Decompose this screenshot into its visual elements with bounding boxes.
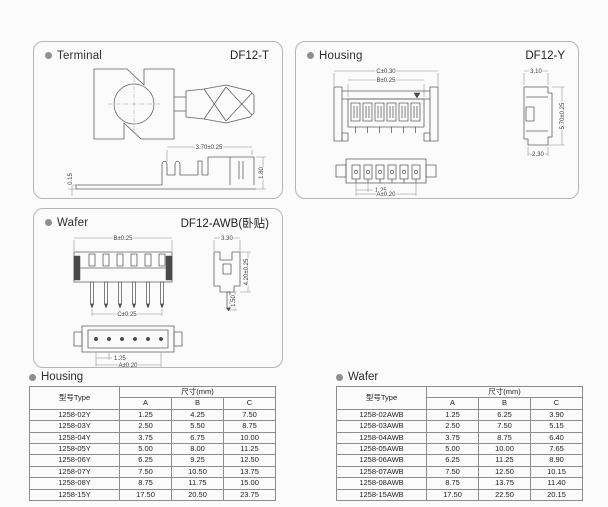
dim-label-wafer-a: A±0.20 [119, 363, 139, 368]
housing-panel-title: Housing [319, 50, 363, 62]
dim-column-header: C [531, 398, 583, 409]
dim-column-header: B [479, 398, 531, 409]
dim-c-cell: 12.50 [224, 455, 276, 466]
housing-table-title: Housing [41, 371, 83, 383]
terminal-panel-title: Terminal [57, 50, 102, 62]
dim-a-cell: 17.50 [427, 489, 479, 500]
table-row: 1258-04Y 3.75 6.75 10.00 [30, 432, 276, 443]
dim-a-cell: 6.25 [120, 455, 172, 466]
dim-a-cell: 6.25 [427, 455, 479, 466]
type-cell: 1258-05Y [30, 444, 120, 455]
table-row: 1258-07Y 7.50 10.50 13.75 [30, 466, 276, 477]
wafer-panel-title: Wafer [57, 217, 88, 229]
dim-b-cell: 4.25 [172, 409, 224, 420]
type-cell: 1258-08AWB [337, 478, 427, 489]
terminal-panel: Terminal DF12-T 3.70±0.25 [33, 41, 283, 199]
dim-label-housing-side-width: 3.10 [530, 69, 542, 75]
bullet-icon [45, 52, 52, 59]
table-row: 1258-07AWB 7.50 12.50 10.15 [337, 466, 583, 477]
dim-b-cell: 11.25 [479, 455, 531, 466]
dim-c-cell: 8.75 [224, 421, 276, 432]
type-cell: 1258-07Y [30, 466, 120, 477]
table-row: 1258-05AWB 5.00 10.00 7.65 [337, 444, 583, 455]
type-cell: 1258-07AWB [337, 466, 427, 477]
dim-b-cell: 11.75 [172, 478, 224, 489]
dim-label-terminal-height: 1.80 [259, 167, 265, 179]
dim-c-cell: 15.00 [224, 478, 276, 489]
housing-table-header: Housing [29, 371, 279, 383]
type-cell: 1258-15AWB [337, 489, 427, 500]
table-row: 1258-15AWB 17.50 22.50 20.15 [337, 489, 583, 500]
type-cell: 1258-03Y [30, 421, 120, 432]
bullet-icon [45, 219, 52, 226]
dim-label-wafer-side-height: 4.20±0.25 [244, 258, 250, 285]
dim-a-cell: 1.25 [120, 409, 172, 420]
dim-label-wafer-b: B±0.25 [114, 236, 134, 242]
table-row: 1258-05Y 5.00 8.00 11.25 [30, 444, 276, 455]
table-row: 1258-03AWB 2.50 7.50 5.15 [337, 421, 583, 432]
wafer-panel: Wafer DF12-AWB(卧贴) B±0.25 [33, 208, 283, 368]
dim-a-cell: 17.50 [120, 489, 172, 500]
table-row: 1258-15Y 17.50 20.50 23.75 [30, 489, 276, 500]
dim-c-cell: 23.75 [224, 489, 276, 500]
type-column-header: 型号Type [30, 387, 120, 410]
dim-a-cell: 5.00 [120, 444, 172, 455]
wafer-table-section: Wafer 型号Type 尺寸(mm) ABC 1258-02AWB 1.25 … [336, 371, 586, 501]
size-column-header: 尺寸(mm) [427, 387, 583, 398]
dim-b-cell: 20.50 [172, 489, 224, 500]
terminal-part-number: DF12-T [230, 50, 269, 62]
bullet-icon [336, 374, 343, 381]
dim-a-cell: 1.25 [427, 409, 479, 420]
dim-label-wafer-pitch: 1.25 [114, 356, 126, 362]
wafer-bottom-view: 1.25 A±0.20 [74, 326, 182, 368]
dim-c-cell: 7.50 [224, 409, 276, 420]
wafer-drawing: B±0.25 C±0.2 [34, 230, 282, 368]
wafer-dimension-table: 型号Type 尺寸(mm) ABC 1258-02AWB 1.25 6.25 3… [336, 386, 583, 501]
dim-label-housing-b: B±0.25 [377, 78, 397, 84]
terminal-drawing: 3.70±0.25 0.15 1.80 [34, 63, 282, 196]
table-row: 1258-03Y 2.50 5.50 8.75 [30, 421, 276, 432]
wafer-side-view: 3.30 1.50 4.20±0.25 [214, 236, 251, 311]
dim-c-cell: 20.15 [531, 489, 583, 500]
dim-c-cell: 13.75 [224, 466, 276, 477]
table-row: 1258-02AWB 1.25 6.25 3.90 [337, 409, 583, 420]
terminal-panel-header: Terminal DF12-T [34, 42, 282, 63]
table-row: 1258-08AWB 8.75 13.75 11.40 [337, 478, 583, 489]
dim-column-header: C [224, 398, 276, 409]
dim-c-cell: 11.40 [531, 478, 583, 489]
dim-a-cell: 7.50 [427, 466, 479, 477]
dim-a-cell: 3.75 [427, 432, 479, 443]
wafer-table-title: Wafer [348, 371, 378, 383]
dim-c-cell: 7.65 [531, 444, 583, 455]
dim-label-housing-side-depth: 2.30 [532, 152, 544, 158]
dim-b-cell: 12.50 [479, 466, 531, 477]
housing-drawing: C±0.30 B±0.25 [296, 63, 578, 199]
dim-a-cell: 5.00 [427, 444, 479, 455]
dim-a-cell: 8.75 [120, 478, 172, 489]
type-cell: 1258-02Y [30, 409, 120, 420]
bullet-icon [29, 374, 36, 381]
dim-column-header: A [120, 398, 172, 409]
type-cell: 1258-05AWB [337, 444, 427, 455]
type-cell: 1258-04AWB [337, 432, 427, 443]
dim-b-cell: 8.00 [172, 444, 224, 455]
dim-c-cell: 11.25 [224, 444, 276, 455]
table-row: 1258-08Y 8.75 11.75 15.00 [30, 478, 276, 489]
terminal-side-view: 3.70±0.25 0.15 1.80 [68, 145, 266, 196]
size-column-header: 尺寸(mm) [120, 387, 276, 398]
dim-label-wafer-side-width: 3.30 [221, 236, 233, 242]
dim-c-cell: 10.15 [531, 466, 583, 477]
dim-column-header: B [172, 398, 224, 409]
wafer-part-number: DF12-AWB(卧贴) [181, 215, 269, 231]
type-cell: 1258-06AWB [337, 455, 427, 466]
dim-a-cell: 2.50 [427, 421, 479, 432]
type-cell: 1258-03AWB [337, 421, 427, 432]
housing-bottom-view: 1.25 A±0.20 [336, 159, 436, 198]
table-row: 1258-06Y 6.25 9.25 12.50 [30, 455, 276, 466]
table-row: 1258-02Y 1.25 4.25 7.50 [30, 409, 276, 420]
dim-b-cell: 13.75 [479, 478, 531, 489]
dim-b-cell: 22.50 [479, 489, 531, 500]
dim-column-header: A [427, 398, 479, 409]
datasheet-page: Terminal DF12-T 3.70±0.25 [0, 0, 608, 507]
wafer-table-header: Wafer [336, 371, 586, 383]
dim-label-housing-side-height: 5.70±0.25 [560, 102, 566, 129]
dim-c-cell: 8.90 [531, 455, 583, 466]
dim-a-cell: 8.75 [427, 478, 479, 489]
type-cell: 1258-08Y [30, 478, 120, 489]
table-row: 1258-04AWB 3.75 8.75 6.40 [337, 432, 583, 443]
dim-label-terminal-length: 3.70±0.25 [196, 145, 223, 151]
dim-label-wafer-pin-length: 1.50 [231, 295, 237, 307]
dim-c-cell: 3.90 [531, 409, 583, 420]
dim-a-cell: 7.50 [120, 466, 172, 477]
dim-label-terminal-thickness: 0.15 [68, 173, 74, 185]
dim-b-cell: 6.75 [172, 432, 224, 443]
housing-dimension-table: 型号Type 尺寸(mm) ABC 1258-02Y 1.25 4.25 7.5… [29, 386, 276, 501]
terminal-top-view [94, 69, 254, 139]
dim-b-cell: 8.75 [479, 432, 531, 443]
bullet-icon [307, 52, 314, 59]
dim-b-cell: 10.50 [172, 466, 224, 477]
housing-table-section: Housing 型号Type 尺寸(mm) ABC 1258-02Y 1.25 … [29, 371, 279, 501]
dim-c-cell: 6.40 [531, 432, 583, 443]
type-cell: 1258-06Y [30, 455, 120, 466]
dim-label-housing-c: C±0.30 [376, 69, 396, 75]
type-cell: 1258-04Y [30, 432, 120, 443]
dim-b-cell: 6.25 [479, 409, 531, 420]
housing-part-number: DF12-Y [525, 50, 565, 62]
dim-c-cell: 5.15 [531, 421, 583, 432]
dim-a-cell: 3.75 [120, 432, 172, 443]
dim-b-cell: 7.50 [479, 421, 531, 432]
dim-b-cell: 5.50 [172, 421, 224, 432]
dim-label-housing-a: A±0.20 [377, 192, 397, 198]
dim-a-cell: 2.50 [120, 421, 172, 432]
wafer-top-view: B±0.25 C±0.2 [74, 236, 172, 318]
dim-label-wafer-c: C±0.25 [117, 312, 137, 318]
type-column-header: 型号Type [337, 387, 427, 410]
housing-front-view: C±0.30 B±0.25 [334, 69, 438, 141]
housing-panel-header: Housing DF12-Y [296, 42, 578, 63]
housing-side-view: 3.10 5.70±0.25 2.30 [524, 69, 566, 158]
housing-panel: Housing DF12-Y C±0.30 B±0.25 [295, 41, 579, 199]
dim-c-cell: 10.00 [224, 432, 276, 443]
type-cell: 1258-02AWB [337, 409, 427, 420]
dim-b-cell: 10.00 [479, 444, 531, 455]
dim-b-cell: 9.25 [172, 455, 224, 466]
wafer-panel-header: Wafer DF12-AWB(卧贴) [34, 209, 282, 230]
table-row: 1258-06AWB 6.25 11.25 8.90 [337, 455, 583, 466]
type-cell: 1258-15Y [30, 489, 120, 500]
